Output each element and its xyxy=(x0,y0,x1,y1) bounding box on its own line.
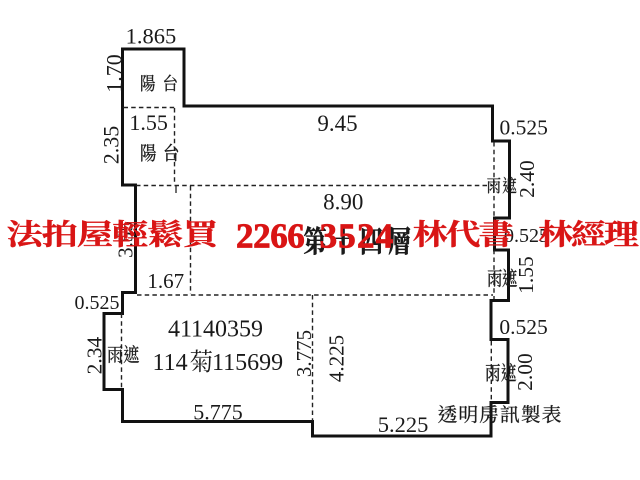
svg-text:41140359: 41140359 xyxy=(168,317,263,343)
svg-text:3524: 3524 xyxy=(320,217,395,256)
svg-text:5.775: 5.775 xyxy=(193,400,243,425)
svg-text:0.525: 0.525 xyxy=(500,116,548,140)
svg-text:2.40: 2.40 xyxy=(515,160,539,198)
svg-text:114: 114 xyxy=(153,350,188,376)
svg-text:9.45: 9.45 xyxy=(317,111,357,136)
svg-text:8.90: 8.90 xyxy=(323,190,363,215)
svg-text:3.775: 3.775 xyxy=(292,330,316,377)
svg-text:5.225: 5.225 xyxy=(378,412,429,437)
svg-text:0.525: 0.525 xyxy=(75,292,120,314)
svg-text:2.00: 2.00 xyxy=(513,353,537,391)
svg-text:1.70: 1.70 xyxy=(102,54,127,93)
svg-text:4.225: 4.225 xyxy=(325,335,349,382)
svg-text:2.35: 2.35 xyxy=(99,126,124,165)
svg-text:1.55: 1.55 xyxy=(514,256,538,294)
svg-text:1.55: 1.55 xyxy=(129,110,168,135)
svg-text:1.865: 1.865 xyxy=(126,24,177,49)
svg-text:2.34: 2.34 xyxy=(83,336,107,374)
svg-text:1.67: 1.67 xyxy=(147,269,184,293)
svg-text:0.525: 0.525 xyxy=(499,315,547,339)
svg-text:115699: 115699 xyxy=(212,350,283,376)
svg-text:2266: 2266 xyxy=(236,217,304,256)
